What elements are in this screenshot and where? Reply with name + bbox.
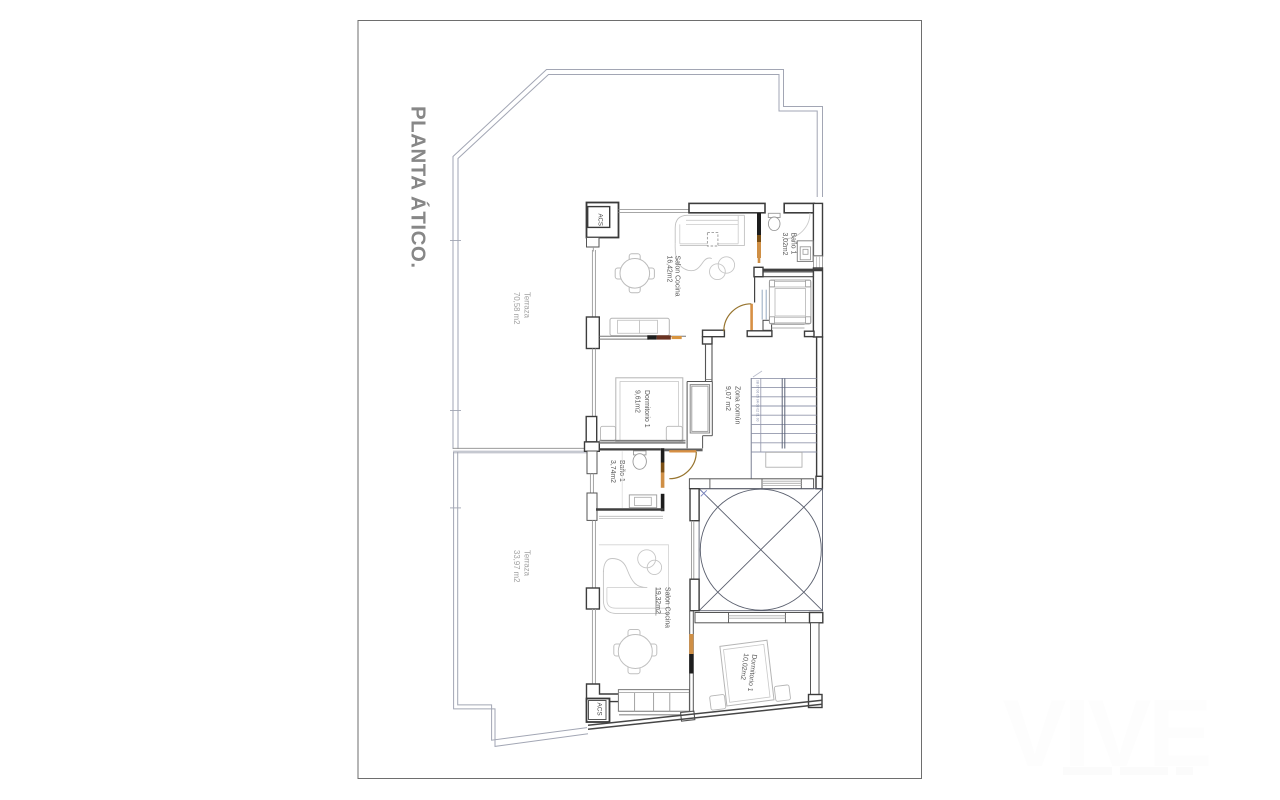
svg-text:33,97 m2: 33,97 m2 (512, 550, 521, 583)
svg-text:Zona común: Zona común (734, 386, 741, 424)
svg-text:9,07 m2: 9,07 m2 (724, 386, 731, 411)
svg-text:3,74m2: 3,74m2 (609, 460, 616, 483)
svg-text:PLANTA ÁTICO.: PLANTA ÁTICO. (407, 106, 430, 269)
svg-text:9,61m2: 9,61m2 (634, 390, 641, 413)
svg-text:Baño 1: Baño 1 (789, 233, 796, 255)
svg-text:70,58 m2: 70,58 m2 (512, 292, 521, 325)
svg-text:Salon Cocina: Salon Cocina (664, 587, 671, 628)
svg-text:08 07 06 05 04 03 02 01 00: 08 07 06 05 04 03 02 01 00 (756, 380, 760, 422)
svg-text:ACS: ACS (597, 214, 603, 226)
svg-text:Terraza: Terraza (523, 292, 532, 319)
svg-text:3,02m2: 3,02m2 (781, 233, 788, 256)
svg-text:Baño 1: Baño 1 (618, 460, 625, 482)
svg-text:19,32m2: 19,32m2 (654, 587, 661, 614)
svg-text:Salon Cocina: Salon Cocina (674, 256, 681, 297)
svg-text:Terraza: Terraza (523, 550, 532, 577)
svg-text:ACS: ACS (596, 703, 603, 716)
svg-text:16,42m2: 16,42m2 (666, 256, 673, 283)
svg-text:Dormitorio 1: Dormitorio 1 (643, 390, 650, 428)
